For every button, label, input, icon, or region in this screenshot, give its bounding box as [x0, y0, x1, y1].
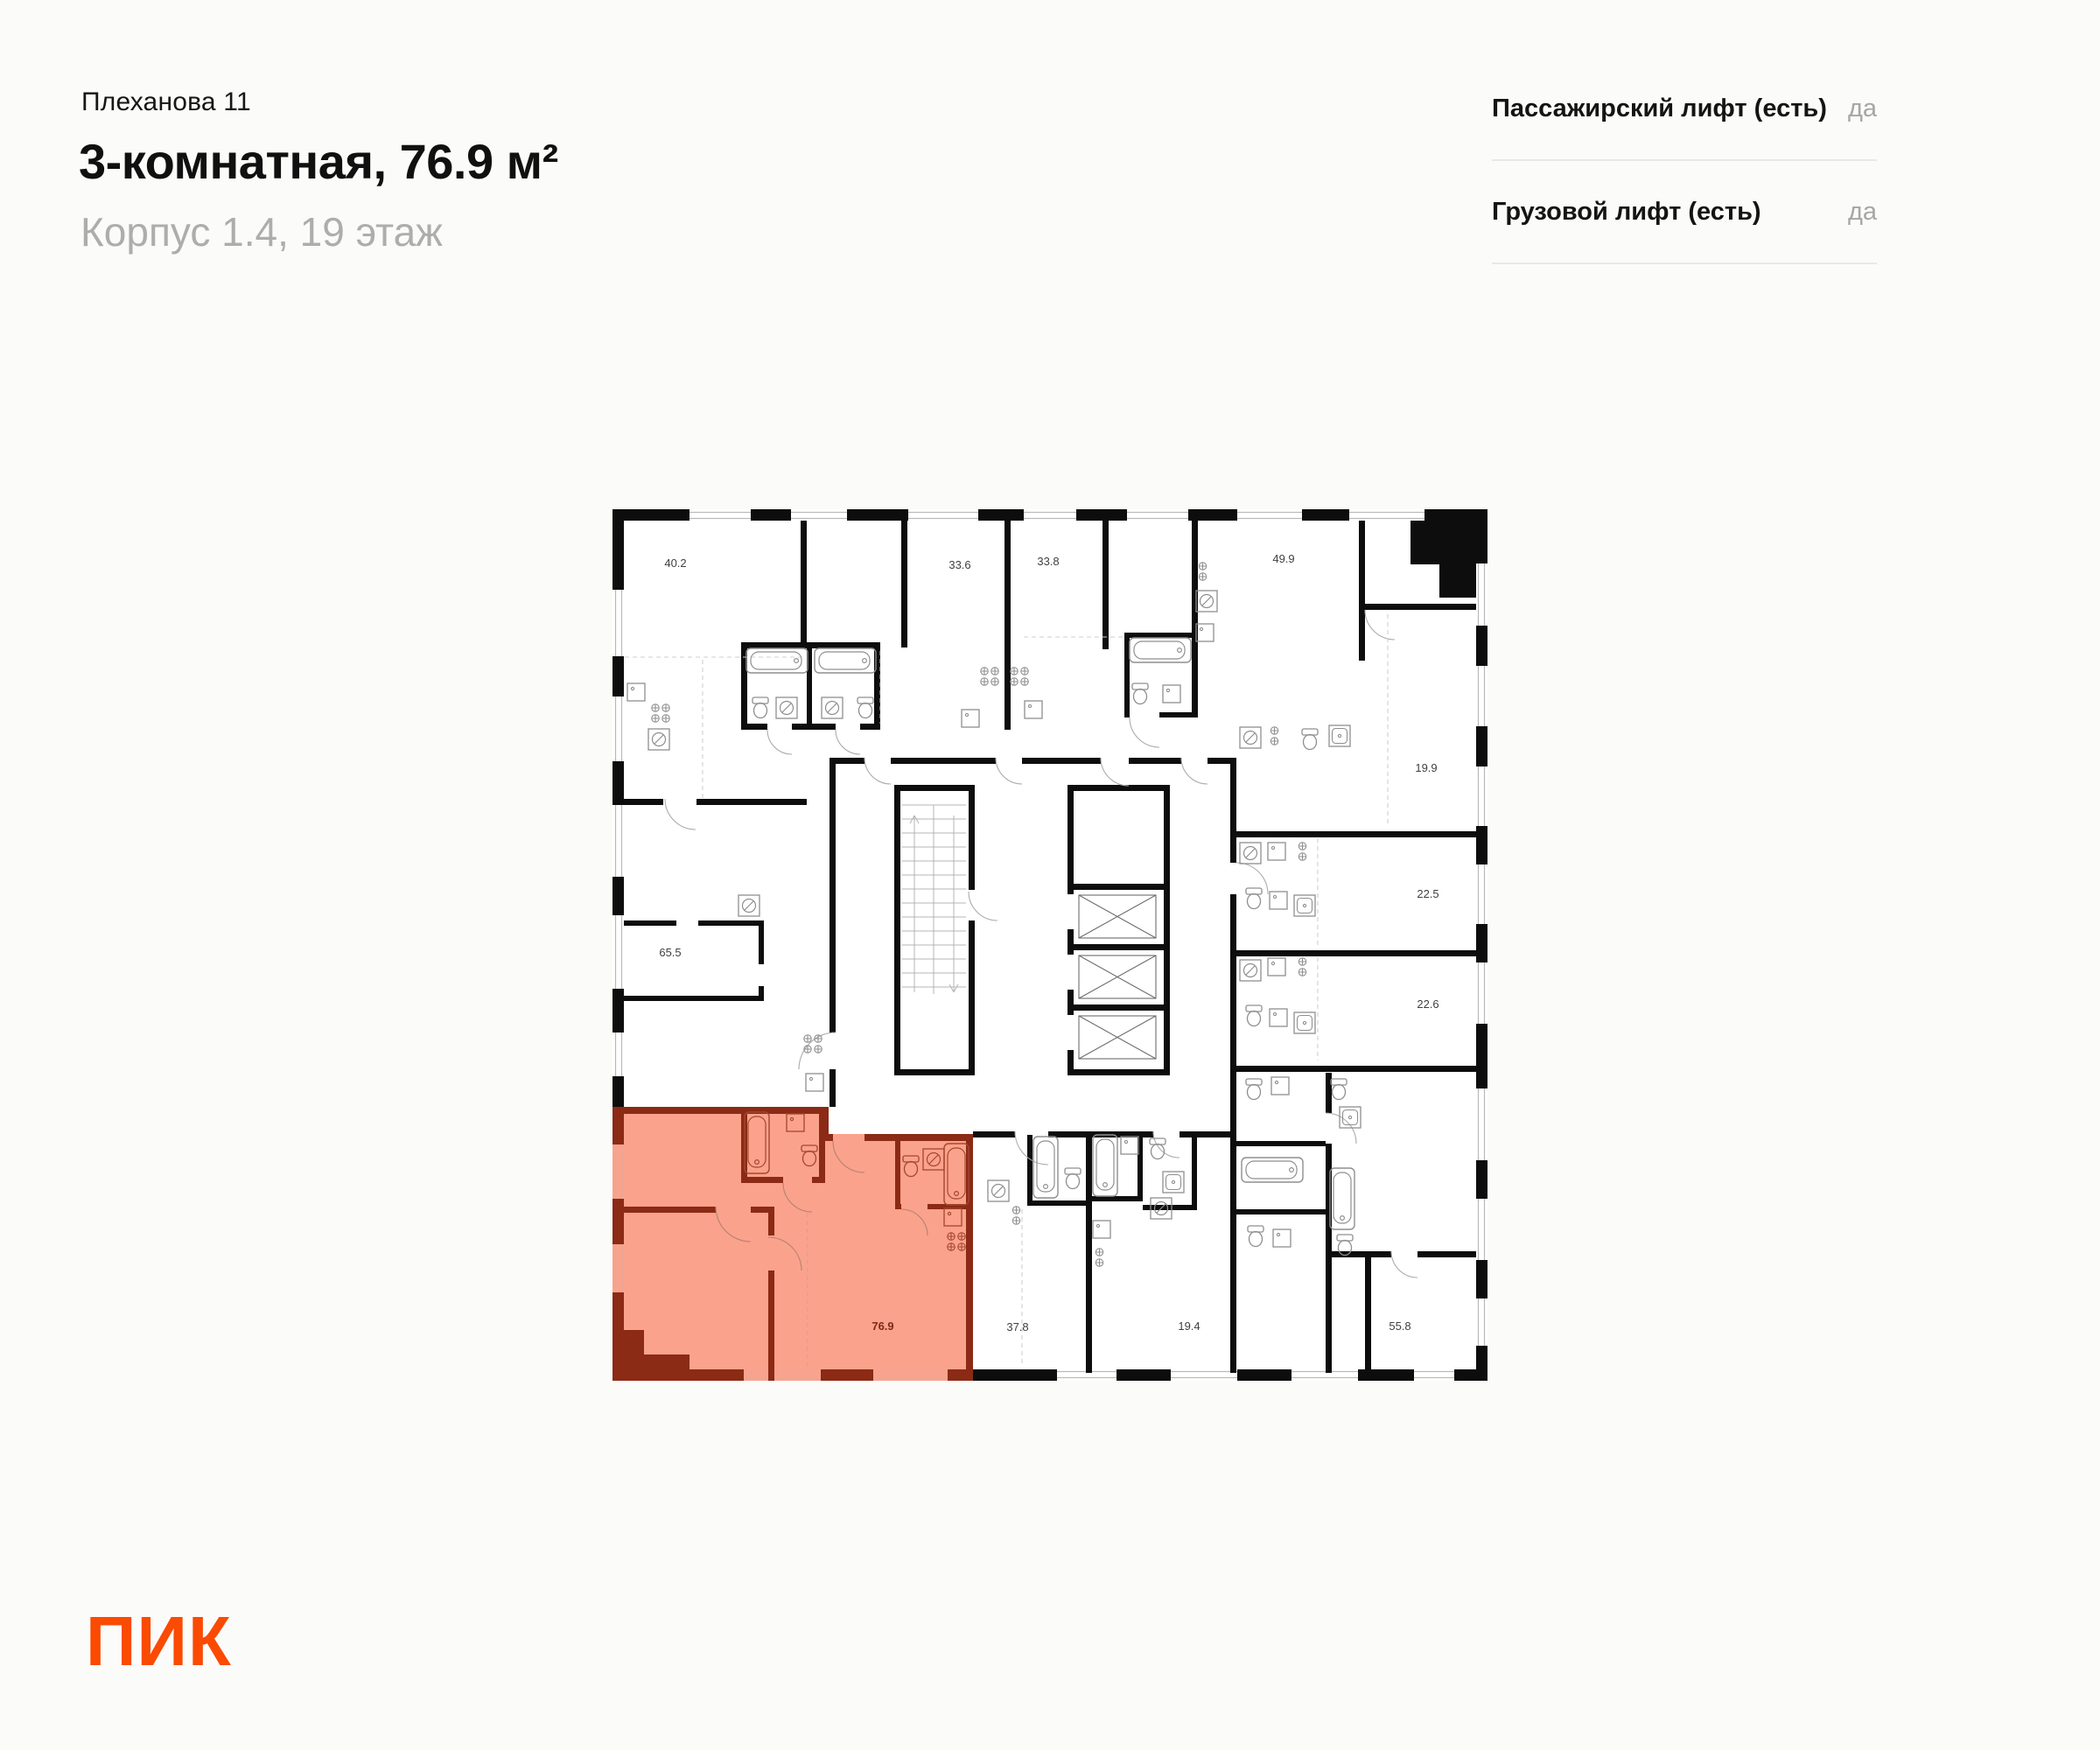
spec-value: да — [1848, 94, 1877, 123]
floor-plan: 40.2 33.6 33.8 49.9 19.9 22.5 22.6 65.5 … — [612, 509, 1487, 1381]
specs-panel: Пассажирский лифт (есть) да Грузовой лиф… — [1492, 58, 1877, 264]
room-area-label: 19.4 — [1178, 1319, 1200, 1333]
highlighted-apartment[interactable] — [612, 1107, 973, 1381]
room-area-label: 22.6 — [1417, 997, 1438, 1011]
spec-value: да — [1848, 198, 1877, 227]
room-area-label: 65.5 — [659, 946, 681, 959]
room-area-label: 22.5 — [1417, 887, 1438, 900]
room-area-label: 33.8 — [1037, 555, 1059, 568]
page-subtitle: Корпус 1.4, 19 этаж — [80, 208, 443, 255]
highlighted-area-label: 76.9 — [871, 1319, 893, 1333]
room-area-label: 19.9 — [1415, 761, 1437, 774]
spec-row-passenger-lift: Пассажирский лифт (есть) да — [1492, 58, 1877, 161]
pik-logo[interactable]: ПИК — [86, 1601, 232, 1682]
page-title: 3-комнатная, 76.9 м² — [79, 133, 558, 190]
spec-label: Грузовой лифт (есть) — [1492, 198, 1761, 227]
room-area-label: 55.8 — [1389, 1319, 1410, 1333]
room-area-label: 40.2 — [664, 556, 686, 570]
room-area-label: 37.8 — [1006, 1320, 1028, 1333]
room-area-label: 33.6 — [948, 558, 970, 571]
project-name[interactable]: Плеханова 11 — [81, 87, 251, 117]
spec-label: Пассажирский лифт (есть) — [1492, 94, 1827, 123]
spec-row-cargo-lift: Грузовой лифт (есть) да — [1492, 161, 1877, 264]
room-area-label: 49.9 — [1272, 552, 1294, 565]
